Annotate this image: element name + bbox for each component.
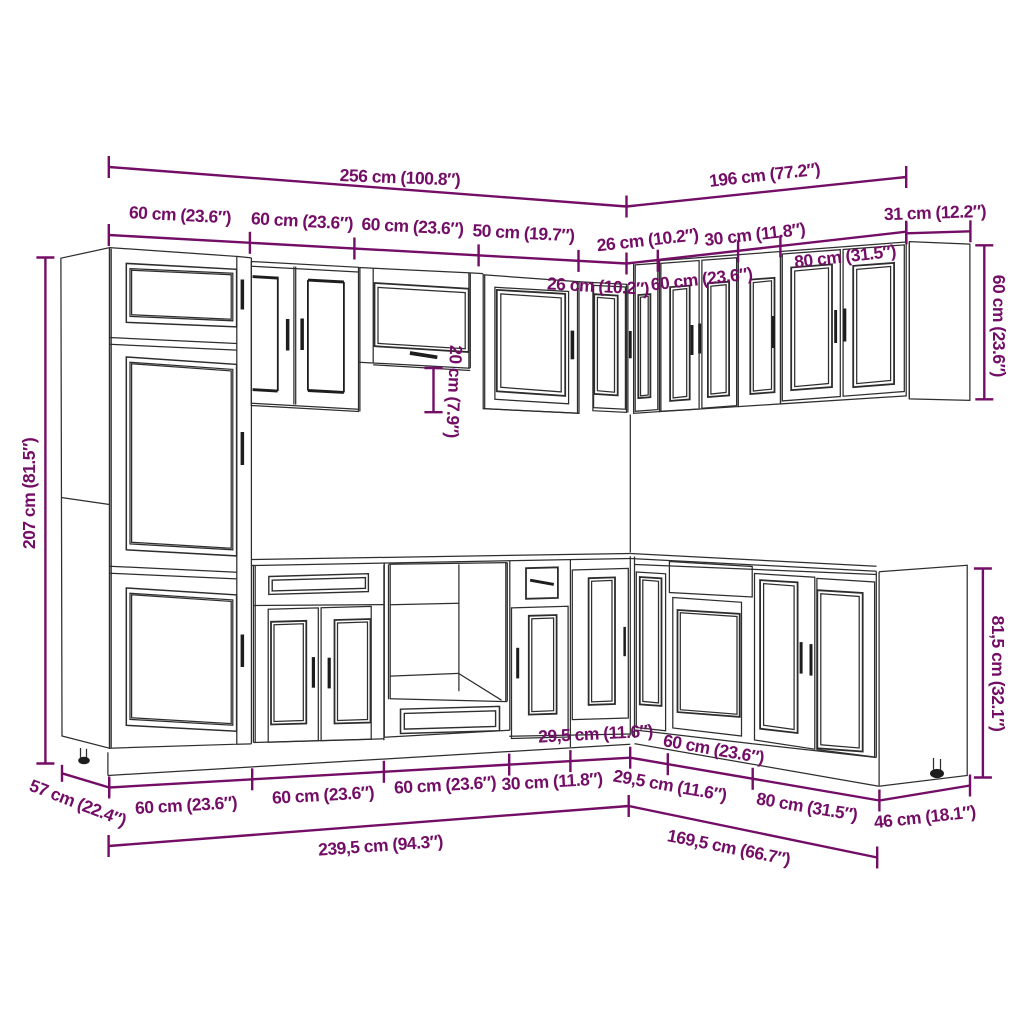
svg-text:60 cm (23.6″): 60 cm (23.6″) bbox=[250, 208, 353, 233]
svg-text:57 cm (22.4″): 57 cm (22.4″) bbox=[27, 775, 129, 830]
svg-text:60 cm (23.6″): 60 cm (23.6″) bbox=[361, 214, 464, 239]
svg-text:60 cm (23.6″): 60 cm (23.6″) bbox=[128, 202, 231, 227]
svg-text:26 cm (10.2″): 26 cm (10.2″) bbox=[596, 224, 700, 255]
svg-text:46 cm (18.1″): 46 cm (18.1″) bbox=[873, 801, 977, 832]
svg-text:169,5 cm (66.7″): 169,5 cm (66.7″) bbox=[666, 825, 792, 869]
svg-text:60 cm (23.6″): 60 cm (23.6″) bbox=[393, 772, 496, 798]
svg-text:20 cm (7.9″): 20 cm (7.9″) bbox=[442, 345, 466, 439]
svg-text:60 cm (23.6″): 60 cm (23.6″) bbox=[134, 792, 237, 818]
svg-text:207 cm (81.5″): 207 cm (81.5″) bbox=[19, 438, 39, 549]
svg-text:26 cm (10.2″): 26 cm (10.2″) bbox=[546, 273, 649, 298]
svg-text:196 cm (77.2″): 196 cm (77.2″) bbox=[708, 159, 821, 191]
svg-text:30 cm (11.8″): 30 cm (11.8″) bbox=[501, 768, 603, 794]
svg-text:60 cm (23.6″): 60 cm (23.6″) bbox=[662, 730, 766, 767]
svg-text:29,5 cm (11.6″): 29,5 cm (11.6″) bbox=[538, 721, 654, 747]
svg-text:31 cm (12.2″): 31 cm (12.2″) bbox=[884, 201, 987, 224]
svg-text:81,5 cm (32.1″): 81,5 cm (32.1″) bbox=[988, 616, 1008, 732]
svg-text:60 cm (23.6″): 60 cm (23.6″) bbox=[271, 782, 374, 808]
svg-text:239,5 cm (94.3″): 239,5 cm (94.3″) bbox=[318, 831, 444, 860]
svg-text:60 cm (23.6″): 60 cm (23.6″) bbox=[989, 275, 1009, 377]
svg-text:50 cm (19.7″): 50 cm (19.7″) bbox=[472, 220, 575, 245]
